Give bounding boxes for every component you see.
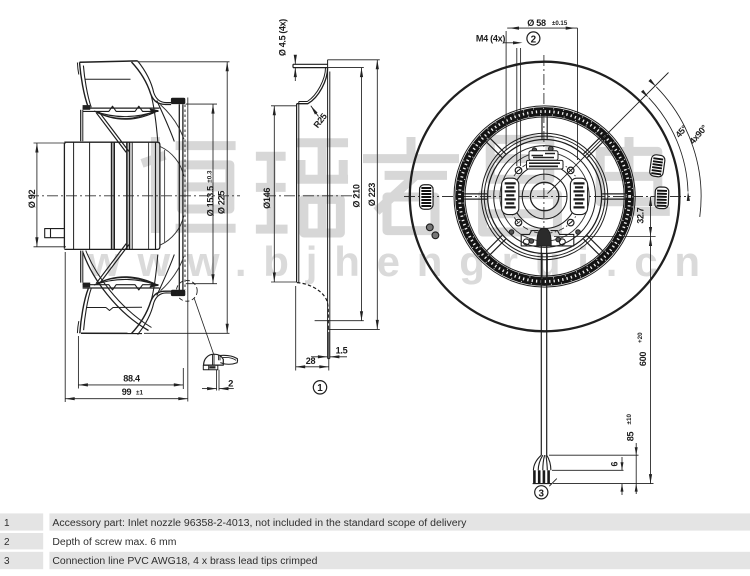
svg-text:1.5: 1.5 xyxy=(336,345,348,355)
svg-text:±0.3: ±0.3 xyxy=(206,170,213,183)
svg-text:88.4: 88.4 xyxy=(123,373,141,383)
svg-text:99: 99 xyxy=(122,387,132,397)
svg-text:6: 6 xyxy=(610,461,620,466)
svg-text:600: 600 xyxy=(638,352,648,367)
svg-text:Connection line PVC AWG18, 4 x: Connection line PVC AWG18, 4 x brass lea… xyxy=(52,556,317,567)
svg-text:1: 1 xyxy=(317,383,323,394)
svg-text:85: 85 xyxy=(626,432,636,442)
svg-text:Ø 58: Ø 58 xyxy=(527,18,546,28)
svg-text:2: 2 xyxy=(531,34,537,45)
svg-text:32.7: 32.7 xyxy=(636,207,646,223)
svg-text:2: 2 xyxy=(4,537,10,548)
svg-text:±0.15: ±0.15 xyxy=(552,20,568,27)
svg-text:±10: ±10 xyxy=(626,414,633,425)
svg-text:28: 28 xyxy=(306,356,316,366)
svg-text:+20: +20 xyxy=(637,332,644,343)
svg-text:Ø146: Ø146 xyxy=(262,188,272,209)
svg-text:1: 1 xyxy=(4,518,10,529)
svg-text:M4 (4x): M4 (4x) xyxy=(476,34,506,44)
svg-text:2: 2 xyxy=(228,378,233,389)
svg-text:3: 3 xyxy=(4,556,10,567)
svg-text:Ø 225: Ø 225 xyxy=(217,191,227,215)
svg-text:Ø 92: Ø 92 xyxy=(27,190,37,209)
svg-text:Depth of screw max. 6 mm: Depth of screw max. 6 mm xyxy=(52,537,176,548)
svg-text:3: 3 xyxy=(539,488,545,499)
svg-text:Accessory part: Inlet nozzle 9: Accessory part: Inlet nozzle 96358-2-401… xyxy=(52,518,466,529)
svg-text:Ø 4.5 (4x): Ø 4.5 (4x) xyxy=(278,19,288,56)
svg-text:Ø 223: Ø 223 xyxy=(367,183,377,207)
svg-text:±1: ±1 xyxy=(136,390,143,397)
svg-text:Ø 153.5: Ø 153.5 xyxy=(205,186,215,216)
svg-text:Ø 210: Ø 210 xyxy=(351,184,361,208)
